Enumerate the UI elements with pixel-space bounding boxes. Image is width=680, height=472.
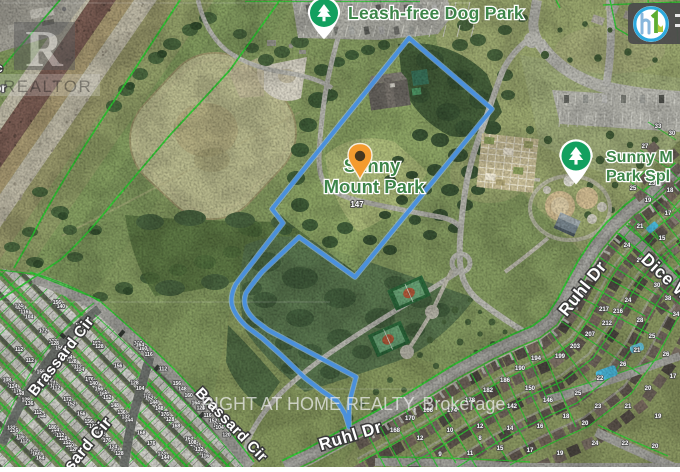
svg-text:RIGHT AT HOME REALTY, Brokerag: RIGHT AT HOME REALTY, Brokerage [201, 394, 505, 414]
svg-text:c: c [0, 61, 3, 75]
svg-text:112: 112 [26, 358, 34, 364]
svg-text:112: 112 [159, 367, 167, 373]
svg-text:150: 150 [525, 386, 536, 392]
svg-text:24: 24 [624, 243, 631, 249]
svg-text:164: 164 [136, 343, 145, 349]
svg-text:22: 22 [622, 441, 629, 447]
svg-text:168: 168 [137, 431, 146, 437]
svg-text:168: 168 [172, 423, 181, 429]
svg-text:24: 24 [592, 441, 599, 447]
svg-text:REALTOR: REALTOR [3, 77, 92, 96]
svg-text:176: 176 [161, 412, 170, 418]
svg-text:207: 207 [585, 332, 596, 338]
svg-text:132: 132 [7, 426, 16, 432]
svg-text:34: 34 [673, 312, 680, 318]
svg-text:38: 38 [665, 296, 672, 302]
svg-text:152: 152 [145, 396, 154, 402]
svg-text:176: 176 [103, 438, 112, 444]
svg-text:30: 30 [669, 131, 676, 137]
svg-text:142: 142 [507, 404, 518, 410]
svg-text:170: 170 [405, 416, 416, 422]
svg-text:112: 112 [15, 347, 23, 353]
svg-text:217: 217 [599, 307, 610, 313]
svg-text:146: 146 [543, 398, 554, 404]
svg-text:156: 156 [53, 300, 62, 306]
svg-text:136: 136 [117, 410, 126, 416]
svg-text:180: 180 [48, 425, 57, 431]
svg-text:15: 15 [497, 446, 504, 452]
svg-text:147: 147 [350, 200, 364, 209]
svg-text:25: 25 [630, 186, 637, 192]
svg-text:18: 18 [563, 414, 570, 420]
svg-text:128: 128 [115, 451, 124, 457]
svg-text:156: 156 [85, 419, 94, 425]
svg-text:112: 112 [74, 365, 82, 371]
svg-text:176: 176 [147, 441, 156, 447]
svg-text:164: 164 [36, 455, 45, 461]
svg-text:17: 17 [665, 211, 672, 217]
svg-text:128: 128 [166, 417, 175, 423]
svg-text:172: 172 [39, 329, 48, 335]
svg-text:199: 199 [555, 354, 566, 360]
svg-text:Mount Park: Mount Park [324, 176, 425, 197]
svg-text:104: 104 [25, 314, 34, 320]
svg-text:186: 186 [500, 378, 511, 384]
svg-text:26: 26 [663, 352, 670, 358]
svg-text:148: 148 [155, 406, 164, 412]
svg-text:128: 128 [95, 344, 104, 350]
svg-text:124: 124 [15, 304, 24, 310]
svg-text:194: 194 [531, 356, 542, 362]
svg-text:23: 23 [595, 404, 602, 410]
svg-text:17: 17 [527, 448, 534, 454]
svg-text:Park Spl: Park Spl [606, 168, 670, 185]
svg-text:112: 112 [56, 433, 64, 439]
svg-text:12: 12 [477, 424, 484, 430]
svg-text:19: 19 [557, 451, 564, 457]
svg-text:104: 104 [136, 386, 145, 392]
svg-text:25: 25 [649, 334, 656, 340]
svg-text:Leash-free Dog Park: Leash-free Dog Park [348, 3, 524, 23]
svg-text:24: 24 [625, 298, 632, 304]
svg-text:18: 18 [667, 188, 674, 194]
svg-text:12: 12 [417, 436, 424, 442]
svg-text:212: 212 [602, 321, 613, 327]
svg-text:33: 33 [655, 124, 662, 130]
svg-text:108: 108 [3, 378, 12, 384]
svg-text:136: 136 [25, 401, 34, 407]
svg-text:R: R [25, 21, 64, 78]
svg-text:21: 21 [625, 404, 632, 410]
svg-text:152: 152 [103, 395, 112, 401]
svg-text:10: 10 [447, 428, 454, 434]
svg-text:20: 20 [582, 421, 589, 427]
svg-text:21: 21 [637, 224, 644, 230]
svg-text:216: 216 [613, 309, 624, 315]
svg-text:172: 172 [63, 397, 72, 403]
svg-text:132: 132 [195, 447, 204, 453]
svg-text:112: 112 [34, 410, 42, 416]
svg-text:156: 156 [77, 412, 86, 418]
svg-text:112: 112 [52, 386, 60, 392]
svg-text:20: 20 [652, 444, 659, 450]
svg-text:28: 28 [637, 318, 644, 324]
svg-text:19: 19 [645, 198, 652, 204]
svg-text:156: 156 [173, 381, 182, 387]
svg-text:148: 148 [111, 403, 120, 409]
svg-text:168: 168 [390, 428, 401, 434]
svg-text:140: 140 [90, 381, 99, 387]
svg-text:116: 116 [16, 434, 24, 440]
svg-text:26: 26 [620, 362, 627, 368]
svg-text:144: 144 [161, 455, 170, 461]
svg-text:124: 124 [109, 445, 118, 451]
svg-text:176: 176 [13, 389, 22, 395]
svg-text:156: 156 [114, 363, 123, 369]
svg-text:25: 25 [575, 391, 582, 397]
svg-text:15: 15 [659, 236, 666, 242]
svg-text:14: 14 [507, 426, 514, 432]
svg-text:20: 20 [645, 386, 652, 392]
svg-text:21: 21 [634, 348, 641, 354]
svg-text:11: 11 [467, 451, 474, 457]
svg-text:148: 148 [178, 387, 187, 393]
svg-text:17: 17 [670, 374, 677, 380]
svg-text:108: 108 [188, 440, 197, 446]
svg-text:190: 190 [515, 366, 526, 372]
svg-text:16: 16 [537, 424, 544, 430]
svg-text:19: 19 [655, 414, 662, 420]
svg-text:Sunny M: Sunny M [606, 149, 673, 166]
svg-text:22: 22 [597, 376, 604, 382]
svg-text:203: 203 [570, 344, 581, 350]
svg-text:116: 116 [145, 352, 153, 358]
